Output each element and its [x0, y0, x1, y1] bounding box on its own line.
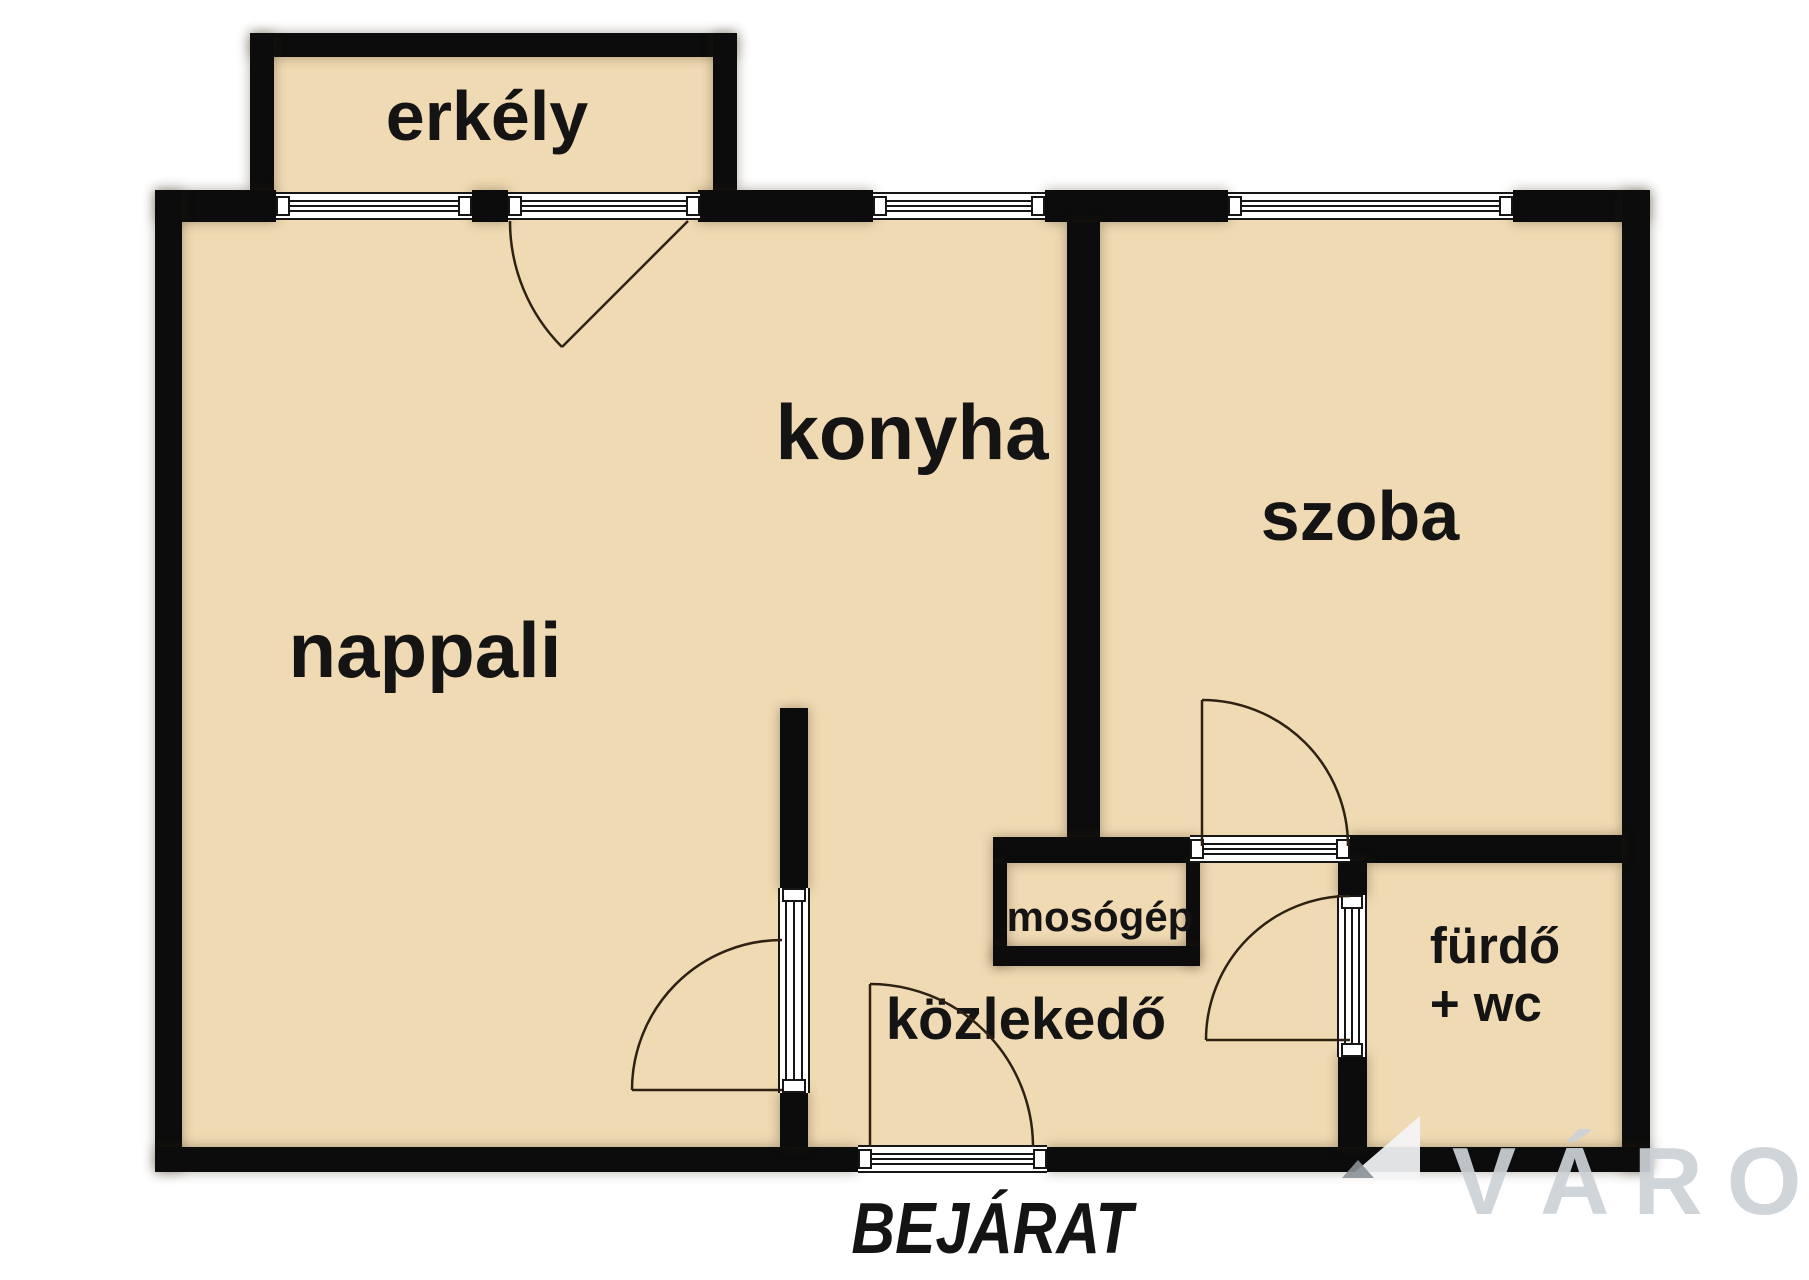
- watermark-text: VÁRO: [1452, 1134, 1809, 1230]
- door-arc: [510, 221, 562, 347]
- furdo-door-swing: [1206, 896, 1350, 1040]
- door-arc: [870, 984, 1033, 1147]
- watermark-logo-icon: [1340, 1108, 1440, 1188]
- door-arc: [632, 940, 782, 1090]
- door-arc: [1202, 700, 1348, 846]
- szoba-door-swing: [1202, 700, 1348, 846]
- door-arc: [1206, 896, 1350, 1040]
- entrance-door-swing: [870, 984, 1033, 1147]
- floor-plan-canvas: erkély nappali konyha szoba mosógép közl…: [0, 0, 1809, 1280]
- door-swings-layer: [0, 0, 1809, 1280]
- nappali-door-swing: [632, 940, 782, 1090]
- balcony-door-swing: [510, 221, 688, 347]
- door-leaf: [562, 221, 688, 347]
